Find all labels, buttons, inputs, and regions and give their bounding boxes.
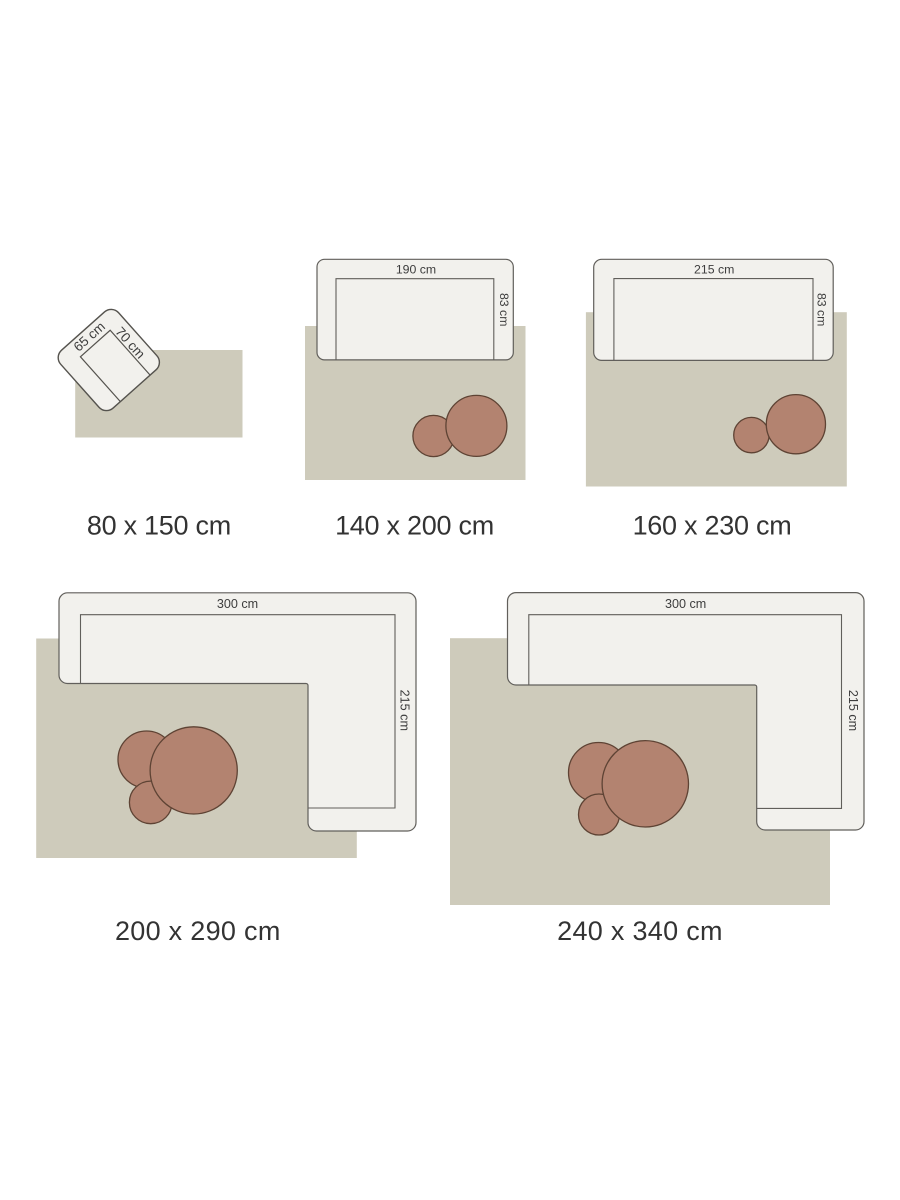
svg-text:215 cm: 215 cm: [398, 690, 412, 731]
svg-text:300 cm: 300 cm: [665, 597, 706, 611]
svg-text:80 x 150 cm: 80 x 150 cm: [87, 511, 231, 541]
svg-text:83 cm: 83 cm: [497, 293, 511, 327]
svg-text:300 cm: 300 cm: [217, 597, 258, 611]
svg-text:140 x 200 cm: 140 x 200 cm: [335, 511, 494, 541]
svg-text:215 cm: 215 cm: [846, 690, 860, 731]
svg-text:240 x 340 cm: 240 x 340 cm: [557, 916, 723, 946]
svg-text:190 cm: 190 cm: [396, 262, 436, 276]
svg-text:200 x 290 cm: 200 x 290 cm: [115, 916, 281, 946]
svg-text:160 x 230 cm: 160 x 230 cm: [633, 511, 792, 541]
svg-text:83 cm: 83 cm: [814, 293, 828, 327]
svg-text:215 cm: 215 cm: [694, 263, 734, 277]
